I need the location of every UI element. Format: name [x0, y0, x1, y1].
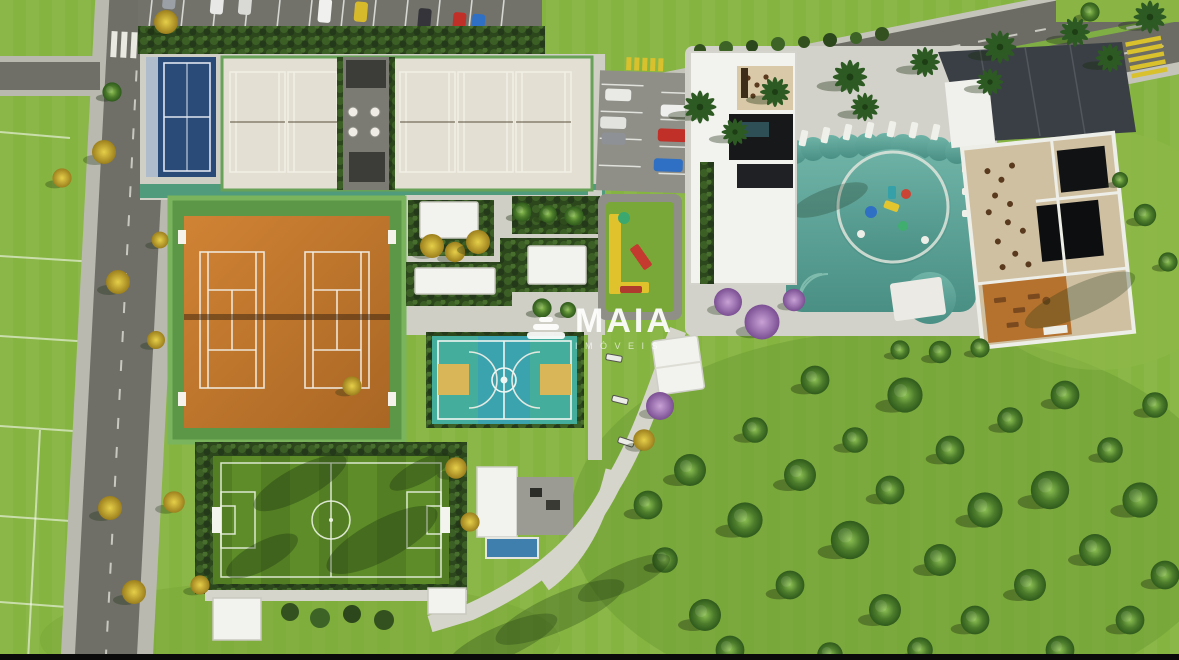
masterplan-svg [0, 0, 1179, 660]
playground [598, 194, 682, 320]
canopy-2 [415, 268, 495, 294]
blue-sport-court [146, 57, 216, 177]
event-tent [652, 335, 705, 395]
key-right [540, 364, 571, 395]
lap-pool [486, 538, 538, 558]
beach-tennis-courts [222, 57, 592, 190]
parking-lot-top [138, 0, 545, 54]
central-terrace [337, 57, 395, 190]
masterplan-render: MAIA IMÓVEIS [0, 0, 1179, 660]
hedge-row-top [138, 26, 545, 54]
key-left [438, 364, 469, 395]
basketball-court [426, 332, 584, 428]
canopy-1 [420, 202, 478, 238]
pool-deck-platform [890, 277, 947, 322]
soccer-field [195, 442, 467, 594]
swimming-pool [783, 121, 976, 324]
goal-right [441, 507, 450, 533]
goal-left [212, 507, 221, 533]
canopy-3 [528, 246, 586, 284]
letterbox-bar [0, 654, 1179, 660]
clay-tennis-courts [170, 198, 404, 442]
